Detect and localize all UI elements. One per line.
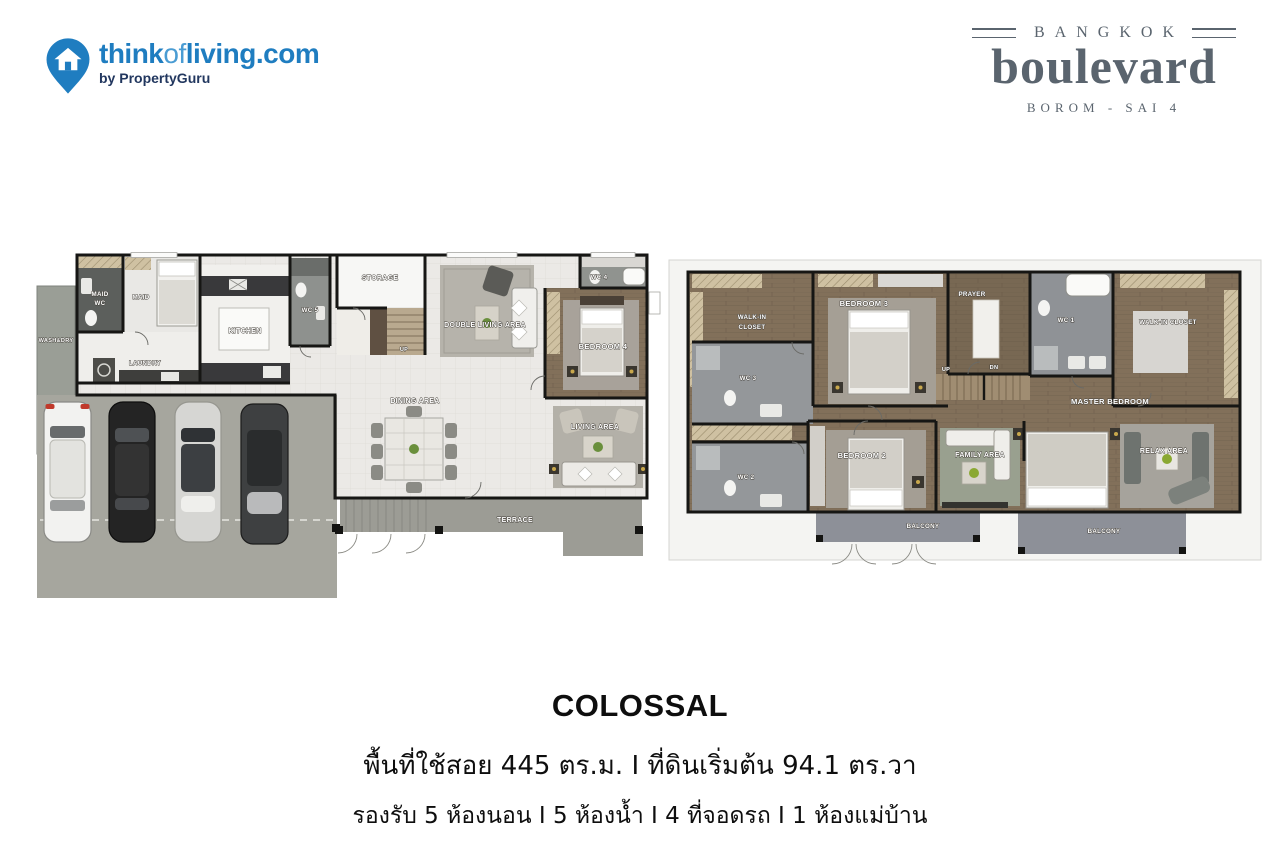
bedroom2-room <box>810 426 926 510</box>
staircase <box>936 374 1030 400</box>
pillar <box>635 526 643 534</box>
kitchen-room <box>200 265 290 385</box>
sink-icon <box>760 494 782 507</box>
wardrobe <box>547 292 560 354</box>
dresser <box>878 274 943 287</box>
staircase-up <box>337 308 425 355</box>
shower <box>696 446 720 470</box>
wc4-room <box>580 255 647 288</box>
counter <box>119 370 200 383</box>
room-label-wc2: WC 2 <box>738 474 755 481</box>
wc5-room <box>290 258 330 346</box>
plant-icon <box>1162 454 1172 464</box>
brand-living: living.com <box>186 38 319 69</box>
door-swing <box>338 534 357 553</box>
project-location: BOROM - SAI 4 <box>963 100 1245 116</box>
room-label-walkin1b: CLOSET <box>739 324 766 331</box>
room-label-dining: DINING AREA <box>390 398 439 405</box>
stairs-label-up: UP <box>400 347 408 353</box>
bangkok-boulevard-logo: BANGKOK boulevard BOROM - SAI 4 <box>963 24 1245 116</box>
bed-icon <box>157 260 197 326</box>
thinkofliving-logo: thinkofliving.com by PropertyGuru <box>45 36 319 96</box>
bed-icon <box>1026 432 1108 508</box>
bathtub-icon <box>1066 274 1110 296</box>
brand-of: of <box>163 38 185 69</box>
washer-icon <box>93 358 115 382</box>
feature-wall <box>370 308 387 355</box>
pillar <box>1179 547 1186 554</box>
plan-area-line: พื้นที่ใช้สอย 445 ตร.ม. I ที่ดินเริ่มต้น… <box>0 745 1280 786</box>
toilet-icon <box>85 310 97 326</box>
room-label-family: FAMILY AREA <box>955 452 1005 459</box>
pillar <box>435 526 443 534</box>
sink-icon <box>1089 356 1106 369</box>
pillar <box>335 526 343 534</box>
ac-unit-icon <box>649 292 660 314</box>
page: thinkofliving.com by PropertyGuru BANGKO… <box>0 0 1280 854</box>
toilet-icon <box>724 480 736 496</box>
room-label-storage: STORAGE <box>362 275 399 282</box>
wc1-room <box>1030 272 1113 376</box>
second-floor-plan: WALK-IN CLOSET BEDROOM 3 PRAYER WC 1 WAL… <box>668 256 1264 578</box>
room-label-maid-wc: MAID <box>91 291 108 298</box>
pillar <box>816 535 823 542</box>
toilet-icon <box>296 283 307 298</box>
room-label-bedroom2: BEDROOM 2 <box>838 451 887 460</box>
prayer-room <box>948 272 1030 374</box>
room-label-wc5: WC 5 <box>302 307 319 314</box>
master-bedroom <box>1013 428 1122 508</box>
plan-title: COLOSSAL <box>0 688 1280 724</box>
relax-area <box>1120 424 1214 508</box>
brand-wordmark: thinkofliving.com <box>99 40 319 68</box>
room-label-bedroom4: BEDROOM 4 <box>579 342 628 351</box>
wc3-room <box>692 342 813 424</box>
plan-rooms-line: รองรับ 5 ห้องนอน I 5 ห้องน้ำ I 4 ที่จอดร… <box>0 798 1280 834</box>
car-dark-suv <box>241 404 288 544</box>
room-label-double-living: DOUBLE LIVING AREA <box>444 322 526 329</box>
wardrobe <box>125 257 151 270</box>
console <box>580 296 624 305</box>
room-label-wash-dry: WASH&DRY <box>39 338 74 344</box>
bed-icon <box>848 310 910 394</box>
double-rule-right <box>1192 28 1236 38</box>
room-label-maid: MAID <box>132 294 149 301</box>
room-label-terrace: TERRACE <box>497 517 533 524</box>
plan-caption: COLOSSAL พื้นที่ใช้สอย 445 ตร.ม. I ที่ดิ… <box>0 688 1280 834</box>
sink-icon <box>760 404 782 417</box>
closet-strip <box>692 424 792 440</box>
sofa-icon <box>1124 432 1141 484</box>
pillar <box>973 535 980 542</box>
room-label-walkin2: WALK-IN CLOSET <box>1139 319 1196 326</box>
brand-pin-icon <box>45 36 91 96</box>
stairs-label-up: UP <box>942 367 950 373</box>
double-rule-left <box>972 28 1016 38</box>
plant-icon <box>969 468 979 478</box>
bed-icon <box>848 438 904 510</box>
shower <box>696 346 720 370</box>
room-label-wc3: WC 3 <box>740 375 757 382</box>
car-silver-sedan <box>175 402 221 542</box>
pillar <box>1018 547 1025 554</box>
family-area <box>940 428 1020 508</box>
room-label-bedroom3: BEDROOM 3 <box>840 299 889 308</box>
sink-icon <box>1068 356 1085 369</box>
room-label-master: MASTER BEDROOM <box>1071 397 1149 406</box>
terrace <box>335 498 643 556</box>
living-area <box>549 406 648 488</box>
wardrobe <box>810 426 825 506</box>
garage <box>37 395 340 598</box>
room-label-wc4: WC 4 <box>591 274 608 281</box>
plant-icon <box>409 444 419 454</box>
shower <box>1034 346 1058 370</box>
room-label-maid-wc2: WC <box>95 300 106 307</box>
plant-icon <box>593 442 603 452</box>
car-black-sedan <box>109 402 155 542</box>
room-label-wc1: WC 1 <box>1058 317 1075 324</box>
tv-console <box>942 502 1008 508</box>
brand-byline: by PropertyGuru <box>99 70 319 86</box>
project-name: boulevard <box>963 40 1245 92</box>
bathtub-icon <box>623 268 645 285</box>
door-swing <box>406 534 425 553</box>
room-label-living: LIVING AREA <box>571 424 619 431</box>
sink-icon <box>81 278 92 294</box>
double-living-area <box>440 265 537 357</box>
wardrobe <box>818 274 873 287</box>
stairs-label-dn: DN <box>990 365 999 371</box>
room-label-balcony-right: BALCONY <box>1088 528 1121 535</box>
room-label-laundry: LAUNDRY <box>129 360 162 367</box>
toilet-icon <box>724 390 736 406</box>
car-white-suv <box>44 402 91 542</box>
brand-think: think <box>99 38 163 69</box>
toilet-icon <box>1038 300 1050 316</box>
storage-room <box>337 256 425 308</box>
altar-mat <box>973 300 999 358</box>
sofa-icon <box>1192 432 1209 484</box>
room-label-balcony-left: BALCONY <box>907 523 940 530</box>
room-label-relax: RELAX AREA <box>1140 448 1188 455</box>
first-floor-plan: WASH&DRY MAID WC MAID LAUNDRY KITCHEN WC… <box>35 248 663 600</box>
sofa-icon <box>562 462 636 486</box>
door-swing <box>372 534 391 553</box>
sofa-icon <box>512 288 537 348</box>
laundry-room <box>77 332 200 383</box>
room-label-kitchen: KITCHEN <box>228 328 261 335</box>
room-label-walkin1: WALK-IN <box>738 314 767 321</box>
room-label-prayer: PRAYER <box>958 291 985 298</box>
